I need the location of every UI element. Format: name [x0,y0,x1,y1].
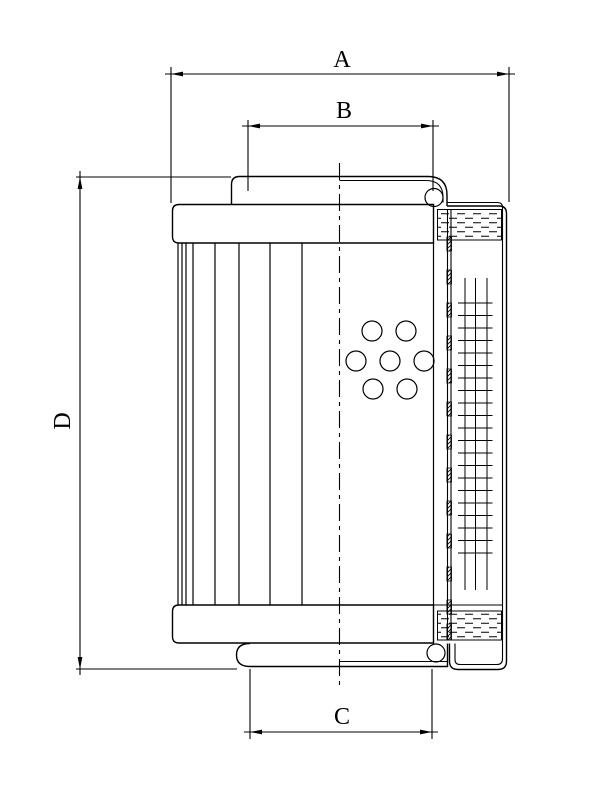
bypass-holes [346,321,434,399]
hole [362,321,382,341]
filter-body [173,163,507,688]
shell-inner-profile [447,203,503,665]
hole [346,351,366,371]
bottom-collar [237,644,448,667]
support-mesh-horizontals [458,303,493,553]
support-mesh-verticals [465,278,487,590]
hole [396,321,416,341]
dim-d-label: D [50,412,76,429]
dim-b-label: B [336,98,352,124]
hole [363,379,383,399]
hole [414,351,434,371]
hole [380,351,400,371]
filter-element-drawing: A B C D [0,0,612,792]
drawing-sheet: A B C D [0,0,612,792]
dim-a-label: A [333,47,351,73]
dimension-d: D [50,171,237,675]
hole [397,379,417,399]
shell-outer-profile [447,206,507,670]
dim-c-label: C [334,704,350,730]
top-end-cap [173,205,434,244]
o-ring-bottom [427,644,445,662]
bottom-end-cap [173,605,434,643]
pleat-lines [178,244,302,606]
dimension-c: C [244,669,438,739]
